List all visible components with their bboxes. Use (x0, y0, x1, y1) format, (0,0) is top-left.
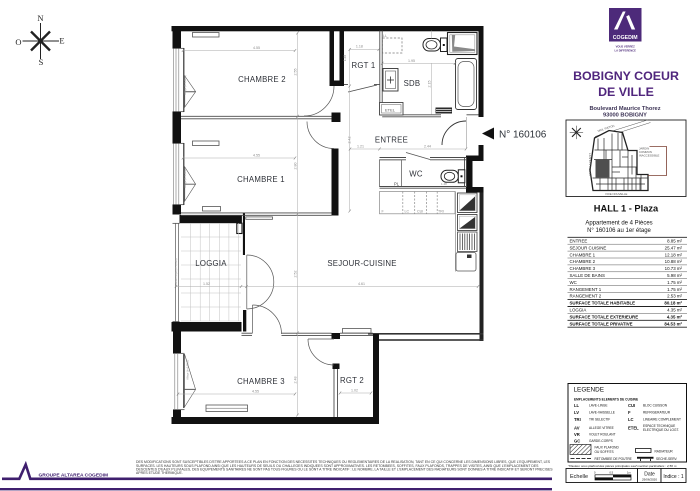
svg-text:SEJOUR-CUISINE: SEJOUR-CUISINE (327, 259, 396, 268)
svg-text:TRI: TRI (438, 210, 444, 214)
svg-text:SURFACE TOTALE HABITABLE: SURFACE TOTALE HABITABLE (570, 301, 636, 306)
svg-text:5.98 m²: 5.98 m² (667, 273, 682, 278)
svg-text:F: F (628, 410, 631, 415)
svg-text:INACCESSIBLE: INACCESSIBLE (639, 154, 659, 158)
svg-text:BOBIGNY COEUR: BOBIGNY COEUR (573, 69, 679, 83)
svg-text:LOGGIA: LOGGIA (195, 259, 227, 268)
svg-text:CHAMBRE 2: CHAMBRE 2 (238, 75, 286, 84)
svg-text:CUI: CUI (628, 403, 635, 408)
svg-text:SALLE DE BAINS: SALLE DE BAINS (570, 273, 605, 278)
svg-text:2.48: 2.48 (294, 377, 298, 384)
svg-text:LL: LL (383, 34, 387, 38)
svg-text:N° 160106: N° 160106 (499, 130, 547, 141)
svg-text:WC: WC (409, 170, 423, 179)
svg-text:84.53 m²: 84.53 m² (664, 321, 682, 326)
svg-text:OU SOFFITS: OU SOFFITS (595, 450, 614, 454)
svg-text:LC: LC (405, 210, 410, 214)
svg-text:LINEAIRE COMPLEMENT: LINEAIRE COMPLEMENT (643, 418, 681, 422)
svg-text:RANGEMENT 1: RANGEMENT 1 (570, 287, 602, 292)
svg-text:DE VILLE: DE VILLE (598, 85, 654, 99)
svg-text:2.53 m²: 2.53 m² (667, 294, 682, 299)
svg-text:2.44: 2.44 (424, 145, 431, 149)
svg-text:Allège (h=0,88m): Allège (h=0,88m) (186, 360, 190, 380)
svg-text:TRI SELECTIF: TRI SELECTIF (589, 418, 610, 422)
svg-text:PL: PL (394, 182, 400, 187)
svg-text:SDB: SDB (404, 79, 421, 88)
svg-text:Boulevard Maurice Thorez: Boulevard Maurice Thorez (589, 106, 660, 112)
svg-text:ETEL: ETEL (628, 426, 639, 431)
svg-text:WC: WC (570, 280, 577, 285)
svg-text:CHAMBRE 2: CHAMBRE 2 (570, 259, 596, 264)
svg-text:ETEL: ETEL (385, 108, 396, 113)
svg-text:VOIE NOUVELLE: VOIE NOUVELLE (605, 192, 628, 196)
svg-text:N° 160106 au 1er étage: N° 160106 au 1er étage (587, 228, 651, 234)
svg-text:CHAMBRE 1: CHAMBRE 1 (570, 252, 596, 257)
svg-text:2.80: 2.80 (294, 163, 298, 170)
svg-text:4.61: 4.61 (358, 282, 365, 286)
svg-text:APRES ETUDE THERMIQUE.: APRES ETUDE THERMIQUE. (136, 471, 183, 475)
svg-text:RGT 1: RGT 1 (351, 61, 375, 70)
svg-text:VOLET ROULANT: VOLET ROULANT (589, 433, 616, 437)
svg-text:SURFACE TOTALE PRIVATIVE: SURFACE TOTALE PRIVATIVE (570, 321, 633, 326)
svg-text:1.21: 1.21 (357, 145, 364, 149)
svg-text:VENELLE OUEST: VENELLE OUEST (588, 153, 592, 176)
svg-text:RGT 2: RGT 2 (340, 376, 364, 385)
svg-text:BLOC CUISSON: BLOC CUISSON (643, 404, 668, 408)
svg-text:LV: LV (574, 410, 579, 415)
svg-text:"Hauteur sous plafond des pièc: "Hauteur sous plafond des pièces princip… (568, 464, 677, 468)
svg-text:GROUPE ALTAREA COGEDIM: GROUPE ALTAREA COGEDIM (39, 472, 109, 478)
svg-text:SECHE-SERV.: SECHE-SERV. (656, 457, 678, 461)
svg-text:RANGEMENT 2: RANGEMENT 2 (570, 294, 602, 299)
svg-text:Echelle: Echelle (570, 474, 588, 480)
svg-text:4.55: 4.55 (252, 390, 259, 394)
svg-text:4.35 m²: 4.35 m² (667, 314, 683, 319)
svg-text:4.55: 4.55 (253, 154, 260, 158)
svg-text:CHAMBRE 1: CHAMBRE 1 (237, 175, 285, 184)
svg-text:CUI: CUI (417, 210, 423, 214)
svg-text:LA DIFFERENCE: LA DIFFERENCE (614, 48, 636, 52)
svg-text:SURFACE TOTALE EXTERIEURE: SURFACE TOTALE EXTERIEURE (570, 314, 639, 319)
svg-text:ENTREE: ENTREE (570, 239, 588, 244)
svg-text:1.95: 1.95 (408, 59, 415, 63)
svg-text:93000 BOBIGNY: 93000 BOBIGNY (603, 113, 647, 119)
svg-text:RADIATEUR: RADIATEUR (655, 449, 674, 453)
svg-text:1.48: 1.48 (343, 55, 347, 61)
svg-text:1.52: 1.52 (203, 282, 210, 286)
svg-text:GC: GC (574, 438, 580, 443)
svg-text:LAVE-LINGE: LAVE-LINGE (589, 404, 608, 408)
svg-text:Allège (h=0,88m): Allège (h=0,88m) (183, 75, 187, 95)
svg-text:Appartement de 4 Pièces: Appartement de 4 Pièces (585, 221, 652, 227)
svg-text:LL: LL (574, 403, 580, 408)
svg-text:S: S (39, 57, 44, 67)
svg-text:ALLEGE VITREE: ALLEGE VITREE (589, 426, 614, 430)
svg-text:2.42: 2.42 (348, 137, 352, 144)
svg-text:4.35 m²: 4.35 m² (667, 308, 682, 313)
svg-text:LOGGIA: LOGGIA (570, 308, 587, 313)
svg-text:SEJOUR CUISINE: SEJOUR CUISINE (570, 245, 607, 250)
svg-text:8.85 m²: 8.85 m² (667, 239, 682, 244)
svg-text:REFRIGERATEUR: REFRIGERATEUR (643, 411, 671, 415)
svg-text:VR: VR (574, 432, 580, 437)
svg-text:ELECTRIQUE DU LOGT.: ELECTRIQUE DU LOGT. (643, 428, 679, 432)
svg-text:1.48: 1.48 (441, 182, 447, 186)
svg-text:E: E (59, 36, 64, 46)
svg-text:25.47 m²: 25.47 m² (665, 245, 683, 250)
svg-text:EMPLACEMENTS ELEMENTS DE CUISI: EMPLACEMENTS ELEMENTS DE CUISINE (574, 398, 638, 402)
svg-text:29/06/2020: 29/06/2020 (642, 478, 657, 482)
svg-text:4.55: 4.55 (253, 46, 260, 50)
svg-text:2.55: 2.55 (294, 69, 298, 76)
svg-text:ENTREE: ENTREE (375, 136, 408, 145)
svg-text:N: N (37, 13, 43, 23)
svg-text:HALL 1 - Plaza: HALL 1 - Plaza (594, 204, 659, 214)
svg-text:1.75 m²: 1.75 m² (667, 287, 682, 292)
svg-text:TRI: TRI (574, 417, 581, 422)
svg-text:10.73 m²: 10.73 m² (665, 266, 683, 271)
svg-text:CHAMBRE 3: CHAMBRE 3 (237, 377, 285, 386)
svg-text:80.18 m²: 80.18 m² (664, 301, 682, 306)
svg-text:DESCENTES D'EAUX PLUVIALES, DE: DESCENTES D'EAUX PLUVIALES, DES EQUIPEME… (136, 467, 553, 471)
svg-text:VOUS VERREZ: VOUS VERREZ (616, 45, 636, 49)
svg-text:COGEDIM: COGEDIM (613, 35, 638, 41)
svg-text:Allège (h=0,88m): Allège (h=0,88m) (183, 168, 187, 188)
svg-text:Garde corps (h=1,00m): Garde corps (h=1,00m) (174, 258, 178, 285)
svg-text:Indice : 1: Indice : 1 (663, 474, 684, 480)
svg-text:1.18: 1.18 (356, 45, 363, 49)
svg-text:GARDE-CORPS: GARDE-CORPS (589, 439, 613, 443)
svg-text:12.18 m²: 12.18 m² (665, 252, 683, 257)
svg-text:LAVE-VAISSELLE: LAVE-VAISSELLE (589, 411, 615, 415)
svg-text:1.02: 1.02 (351, 389, 358, 393)
svg-text:2.52: 2.52 (294, 271, 298, 278)
svg-text:10.88 m²: 10.88 m² (665, 259, 683, 264)
svg-text:0.5: 0.5 (610, 471, 614, 475)
svg-text:1.75 m²: 1.75 m² (667, 280, 682, 285)
svg-text:LEGENDE: LEGENDE (574, 387, 605, 394)
svg-text:O: O (15, 37, 21, 47)
svg-text:CHAMBRE 3: CHAMBRE 3 (570, 266, 596, 271)
svg-text:LC: LC (628, 417, 634, 422)
svg-text:RETOMBEE DE POUTRE: RETOMBEE DE POUTRE (595, 457, 632, 461)
svg-text:2.15: 2.15 (428, 81, 432, 88)
svg-text:1m: 1m (627, 471, 631, 475)
svg-text:AV: AV (574, 426, 580, 431)
